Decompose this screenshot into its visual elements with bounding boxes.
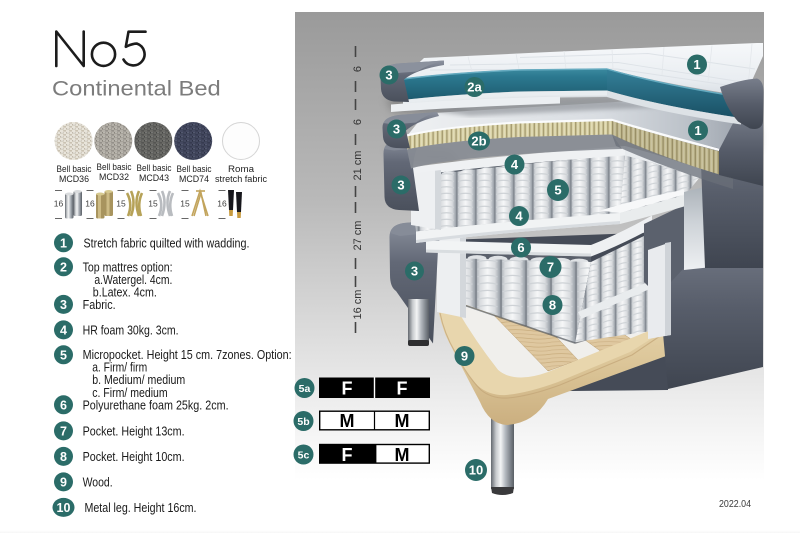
svg-text:Roma: Roma: [228, 164, 254, 174]
svg-text:21 cm: 21 cm: [352, 151, 364, 181]
svg-text:2: 2: [60, 260, 67, 274]
svg-text:6: 6: [517, 240, 524, 255]
svg-text:6: 6: [352, 66, 364, 72]
svg-text:9: 9: [60, 475, 67, 489]
svg-text:1: 1: [694, 123, 701, 138]
svg-text:Pocket. Height 13cm.: Pocket. Height 13cm.: [83, 425, 185, 439]
svg-text:HR foam 30kg. 3cm.: HR foam 30kg. 3cm.: [83, 323, 179, 337]
svg-text:3: 3: [60, 298, 67, 312]
svg-text:7: 7: [60, 424, 67, 438]
svg-text:5a: 5a: [299, 383, 311, 395]
svg-text:Pocket. Height 10cm.: Pocket. Height 10cm.: [83, 450, 185, 464]
svg-text:Stretch fabric quilted with wa: Stretch fabric quilted with wadding.: [84, 236, 250, 250]
svg-text:Bell basic: Bell basic: [97, 162, 132, 172]
svg-text:4: 4: [60, 323, 67, 337]
svg-text:5: 5: [60, 348, 67, 362]
svg-text:MCD74: MCD74: [179, 174, 209, 184]
svg-text:9: 9: [461, 348, 468, 363]
svg-text:MCD43: MCD43: [139, 173, 169, 183]
svg-text:3: 3: [385, 67, 392, 82]
svg-text:8: 8: [60, 450, 67, 464]
svg-text:Continental Bed: Continental Bed: [52, 77, 221, 100]
svg-text:5c: 5c: [298, 449, 310, 461]
svg-text:F: F: [342, 445, 353, 465]
svg-text:F: F: [342, 379, 353, 399]
svg-text:27 cm: 27 cm: [352, 221, 364, 251]
svg-text:15: 15: [180, 199, 190, 209]
svg-text:1: 1: [60, 236, 67, 250]
svg-text:3: 3: [411, 263, 418, 278]
svg-text:2a: 2a: [467, 80, 482, 95]
svg-text:3: 3: [397, 177, 404, 192]
svg-text:stretch fabric: stretch fabric: [215, 174, 267, 184]
svg-text:Wood.: Wood.: [83, 476, 113, 490]
svg-text:Bell basic: Bell basic: [177, 164, 212, 174]
svg-text:15: 15: [116, 199, 126, 209]
svg-text:10: 10: [469, 463, 483, 478]
svg-text:Metal leg. Height 16cm.: Metal leg. Height 16cm.: [85, 501, 197, 515]
svg-text:Fabric.: Fabric.: [83, 298, 116, 312]
svg-text:2b: 2b: [471, 133, 486, 148]
svg-text:M: M: [395, 411, 410, 431]
svg-text:MCD32: MCD32: [99, 172, 129, 182]
svg-text:16 cm: 16 cm: [352, 290, 364, 320]
svg-text:8: 8: [549, 297, 556, 312]
svg-text:10: 10: [57, 501, 71, 515]
svg-text:M: M: [340, 411, 355, 431]
svg-text:16: 16: [85, 199, 95, 209]
svg-text:7: 7: [547, 260, 554, 275]
svg-text:16: 16: [54, 199, 64, 209]
svg-text:15: 15: [148, 199, 158, 209]
svg-text:M: M: [395, 445, 410, 465]
svg-text:F: F: [397, 379, 408, 399]
svg-text:c. Firm/ medium: c. Firm/ medium: [92, 386, 168, 400]
svg-text:Polyurethane foam 25kg. 2cm.: Polyurethane foam 25kg. 2cm.: [83, 399, 229, 413]
svg-text:1: 1: [693, 57, 700, 72]
svg-text:Bell basic: Bell basic: [57, 164, 92, 174]
svg-text:3: 3: [393, 121, 400, 136]
svg-text:MCD36: MCD36: [59, 174, 89, 184]
svg-text:4: 4: [511, 157, 519, 172]
svg-text:6: 6: [352, 119, 364, 125]
svg-text:6: 6: [60, 398, 67, 412]
svg-text:16: 16: [217, 199, 227, 209]
svg-text:5b: 5b: [297, 416, 309, 428]
svg-text:Bell basic: Bell basic: [137, 163, 172, 173]
svg-text:5: 5: [554, 183, 561, 198]
svg-text:2022.04: 2022.04: [719, 499, 751, 510]
svg-text:4: 4: [515, 208, 523, 223]
